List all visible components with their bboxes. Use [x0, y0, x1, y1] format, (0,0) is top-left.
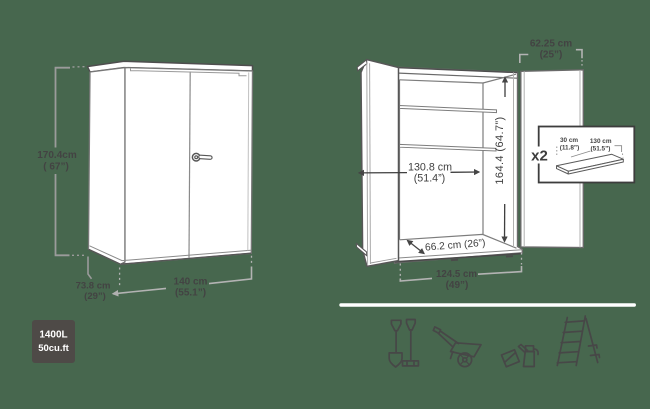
- svg-text:124.5 cm: 124.5 cm: [436, 269, 477, 280]
- svg-text:(25”): (25”): [540, 50, 563, 61]
- svg-text:( 67”): ( 67”): [43, 162, 69, 173]
- svg-text:(51.4”): (51.4”): [414, 173, 445, 185]
- svg-text:164.4 (64.7”): 164.4 (64.7”): [494, 116, 506, 184]
- svg-text:1400L: 1400L: [39, 329, 67, 340]
- svg-text:50cu.ft: 50cu.ft: [38, 343, 69, 354]
- svg-text:(49”): (49”): [446, 280, 469, 291]
- svg-text:62.25 cm: 62.25 cm: [530, 39, 572, 50]
- svg-text:(29”): (29”): [84, 291, 106, 302]
- svg-text:x2: x2: [531, 148, 548, 165]
- svg-text:30 cm: 30 cm: [560, 137, 578, 144]
- svg-text:(51.5”): (51.5”): [591, 145, 611, 152]
- svg-text:(55.1”): (55.1”): [175, 287, 206, 298]
- svg-text:130.8 cm: 130.8 cm: [408, 161, 452, 173]
- svg-text:130 cm: 130 cm: [590, 138, 612, 145]
- svg-text:170.4cm: 170.4cm: [37, 150, 77, 161]
- svg-text:(11.8”): (11.8”): [560, 144, 580, 151]
- svg-text:73.8 cm: 73.8 cm: [76, 281, 111, 292]
- svg-text:140 cm: 140 cm: [174, 276, 208, 287]
